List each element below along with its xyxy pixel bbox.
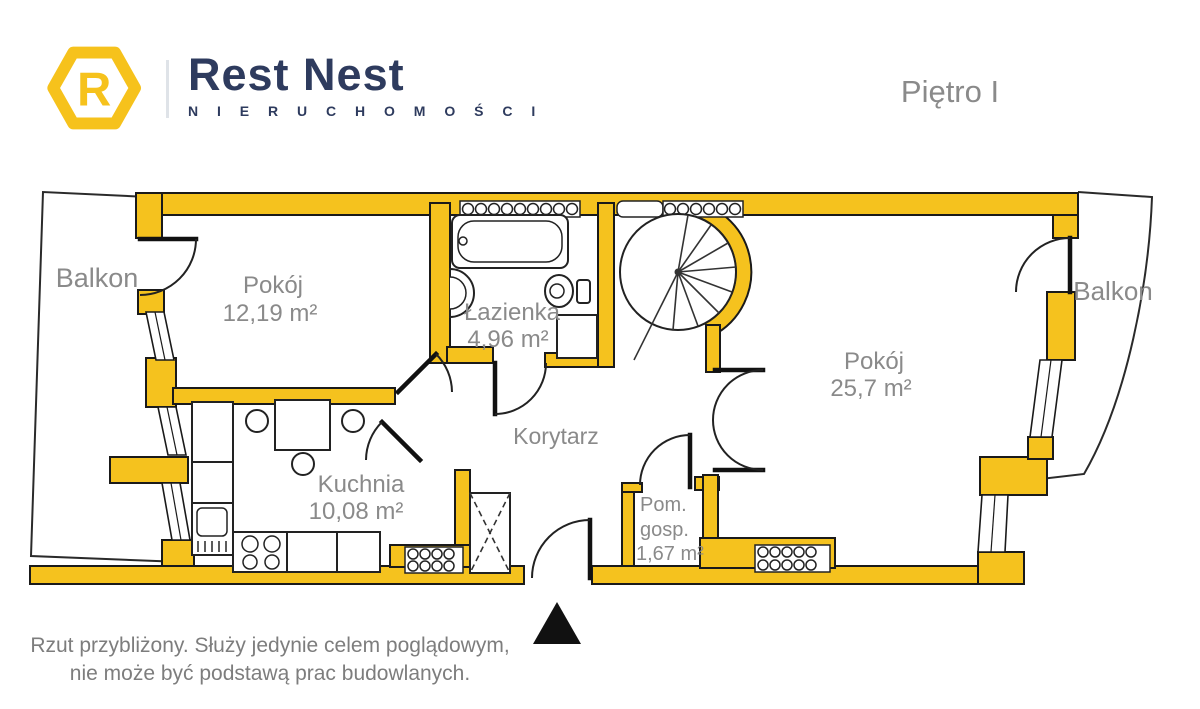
room-area-lazienka: 4,96 m²: [467, 326, 548, 353]
room-area-pom-gosp: 1,67 m²: [636, 543, 704, 565]
washing-machine-icon: [557, 315, 597, 358]
room-area-kuchnia: 10,08 m²: [309, 498, 404, 525]
disclaimer-line-1: Rzut przybliżony. Służy jedynie celem po…: [20, 632, 520, 660]
disclaimer: Rzut przybliżony. Służy jedynie celem po…: [20, 632, 520, 689]
kitchen-table-icon: [246, 400, 364, 475]
disclaimer-line-2: nie może być podstawą prac budowlanych.: [20, 660, 520, 688]
room-label-korytarz: Korytarz: [513, 423, 599, 449]
floor-plan: Balkon Pokój 12,19 m² Łazienka 4,96 m² K…: [0, 0, 1200, 709]
room-label-balkon-right: Balkon: [1073, 276, 1153, 306]
room-label-pokoj-left: Pokój: [243, 272, 303, 299]
wardrobe-icon: [470, 493, 510, 573]
kitchen-sink-icon: [192, 503, 233, 555]
bathtub-icon: [452, 215, 568, 268]
floorplan-page: R Rest Nest N I E R U C H O M O Ś C I Pi…: [0, 0, 1200, 709]
room-label-balkon-left: Balkon: [56, 263, 139, 293]
room-label-pokoj-right: Pokój: [844, 348, 904, 375]
room-area-pokoj-left: 12,19 m²: [223, 300, 318, 327]
room-label-pom-gosp-2: gosp.: [640, 519, 689, 541]
entrance-arrow-icon: [533, 602, 581, 644]
room-label-lazienka: Łazienka: [464, 299, 561, 326]
room-area-pokoj-right: 25,7 m²: [830, 375, 911, 402]
room-label-pom-gosp-1: Pom.: [640, 494, 687, 516]
room-label-kuchnia: Kuchnia: [318, 471, 405, 498]
